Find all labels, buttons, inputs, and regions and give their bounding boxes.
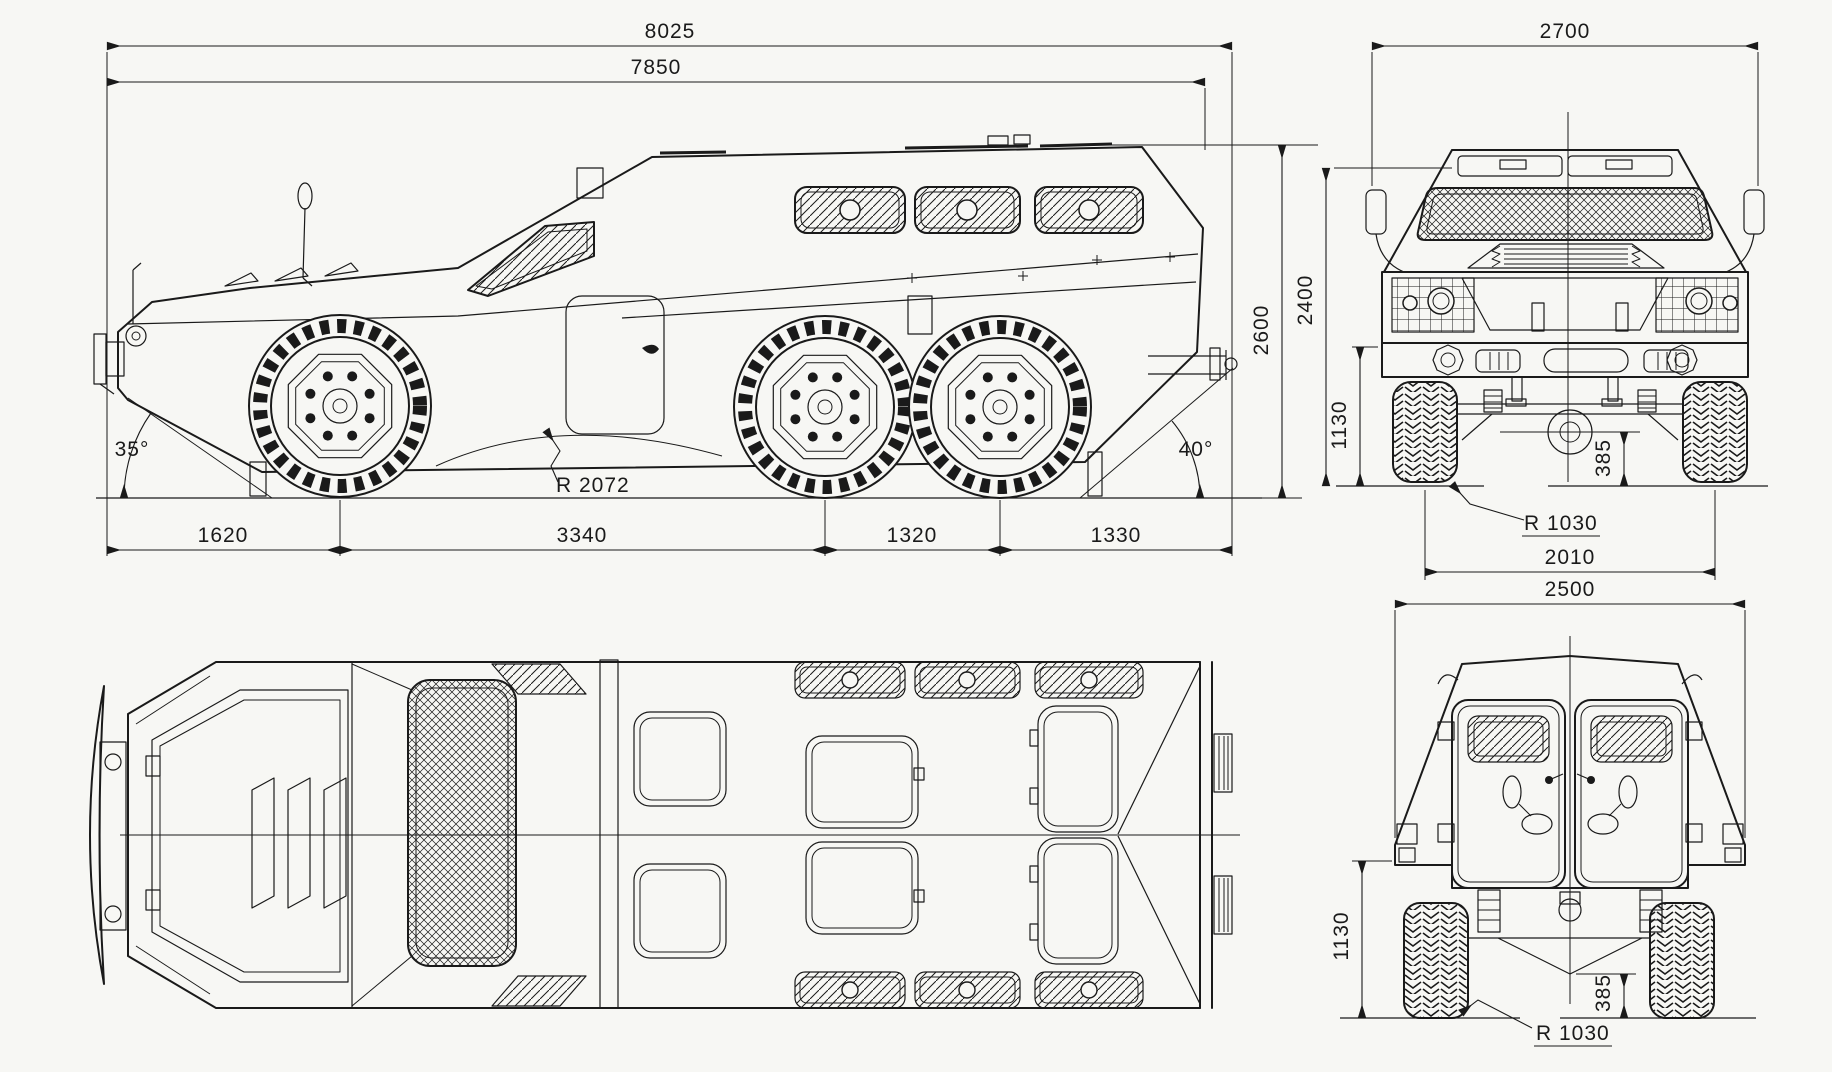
- side-view: 8025 7850 1620 3340 1320 1330 35° 40° R …: [94, 20, 1262, 556]
- side-windows: [795, 187, 1143, 233]
- rear-wheels: [1404, 903, 1714, 1018]
- dim-hull-length: 7850: [631, 56, 682, 79]
- angle-approach: 35°: [115, 438, 150, 461]
- side-dimensions: 8025 7850 1620 3340 1320 1330 35° 40° R …: [107, 20, 1233, 556]
- dim-ground-clearance-rear: 385: [1592, 974, 1615, 1012]
- dim-overall-length: 8025: [645, 20, 696, 43]
- blueprint-page: 8025 7850 1620 3340 1320 1330 35° 40° R …: [0, 0, 1832, 1072]
- dim-wheelbase-rear: 1320: [887, 524, 938, 547]
- dim-wheelbase-front: 3340: [557, 524, 608, 547]
- angle-departure: 40°: [1179, 438, 1214, 461]
- dim-ground-clearance-front: 385: [1592, 439, 1615, 477]
- dim-overall-width-front: 2700: [1540, 20, 1591, 43]
- dim-rear-overhang: 1330: [1091, 524, 1142, 547]
- side-cab-window: [468, 222, 594, 296]
- radius-wheel-rear: R 1030: [1536, 1022, 1610, 1045]
- front-view: 2700 2600 2400 1130 385 R 1030 2010 2500: [1052, 20, 1768, 838]
- dim-track-width: 2010: [1545, 546, 1596, 569]
- dim-hull-height: 2400: [1294, 275, 1317, 326]
- rear-view: 1130 385 R 1030: [1330, 636, 1756, 1046]
- dim-bumper-height-rear: 1130: [1330, 911, 1353, 960]
- top-view: [90, 660, 1240, 1008]
- radius-breakover: R 2072: [556, 474, 630, 497]
- dim-overall-height: 2600: [1250, 305, 1273, 356]
- dim-bumper-height-front: 1130: [1328, 400, 1351, 449]
- side-wheels: [249, 315, 1091, 498]
- radius-wheel-front: R 1030: [1524, 512, 1598, 535]
- blueprint-canvas: 8025 7850 1620 3340 1320 1330 35° 40° R …: [0, 0, 1832, 1072]
- dim-overall-width-rear: 2500: [1545, 578, 1596, 601]
- top-hull: [90, 660, 1232, 1008]
- dim-front-overhang: 1620: [198, 524, 249, 547]
